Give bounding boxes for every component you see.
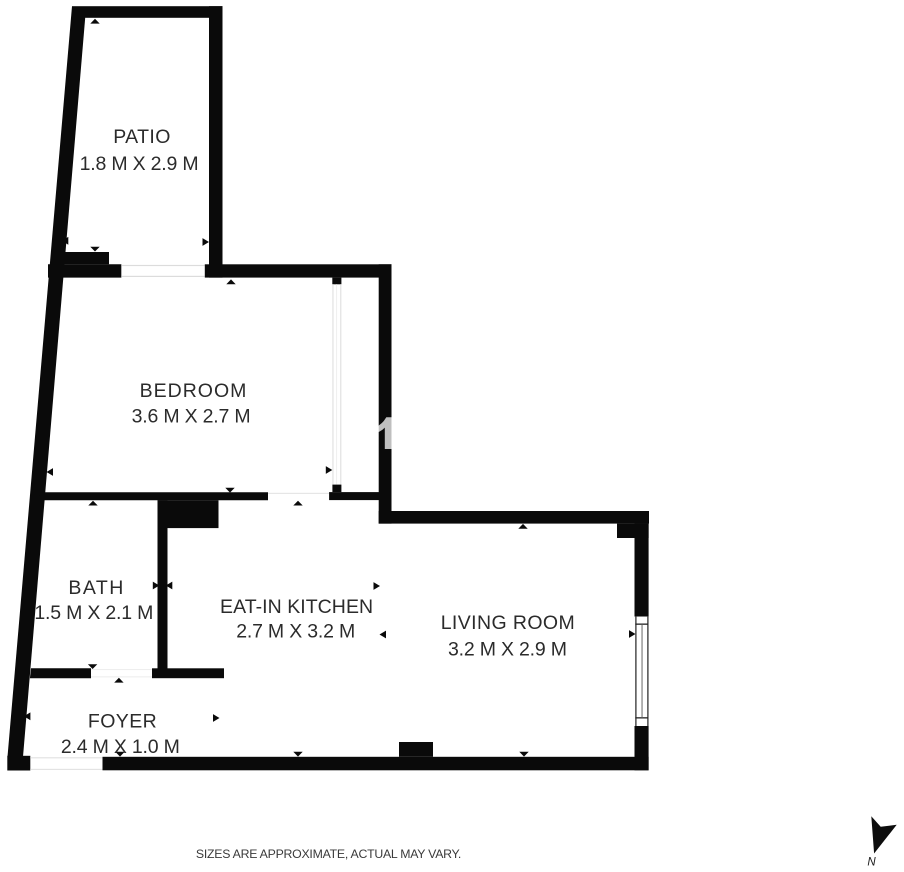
svg-text:1.5 M X 2.1 M: 1.5 M X 2.1 M	[34, 602, 153, 624]
svg-text:2.4 M X 1.0 M: 2.4 M X 1.0 M	[61, 736, 180, 758]
svg-text:BATH: BATH	[68, 577, 125, 599]
svg-text:EAT-IN KITCHEN: EAT-IN KITCHEN	[220, 596, 373, 618]
svg-text:BEDROOM: BEDROOM	[140, 380, 248, 402]
svg-text:LIVING ROOM: LIVING ROOM	[441, 612, 575, 634]
svg-text:N: N	[867, 857, 876, 869]
svg-text:1.8 M X 2.9 M: 1.8 M X 2.9 M	[80, 153, 199, 175]
svg-text:2.7 M X 3.2 M: 2.7 M X 3.2 M	[236, 621, 355, 643]
svg-text:PATIO: PATIO	[113, 126, 171, 148]
svg-text:FOYER: FOYER	[88, 711, 157, 733]
svg-text:3.6 M X 2.7 M: 3.6 M X 2.7 M	[132, 406, 251, 428]
svg-text:3.2 M X 2.9 M: 3.2 M X 2.9 M	[448, 638, 567, 660]
svg-text:SIZES ARE APPROXIMATE, ACTUAL: SIZES ARE APPROXIMATE, ACTUAL MAY VARY.	[196, 847, 461, 861]
